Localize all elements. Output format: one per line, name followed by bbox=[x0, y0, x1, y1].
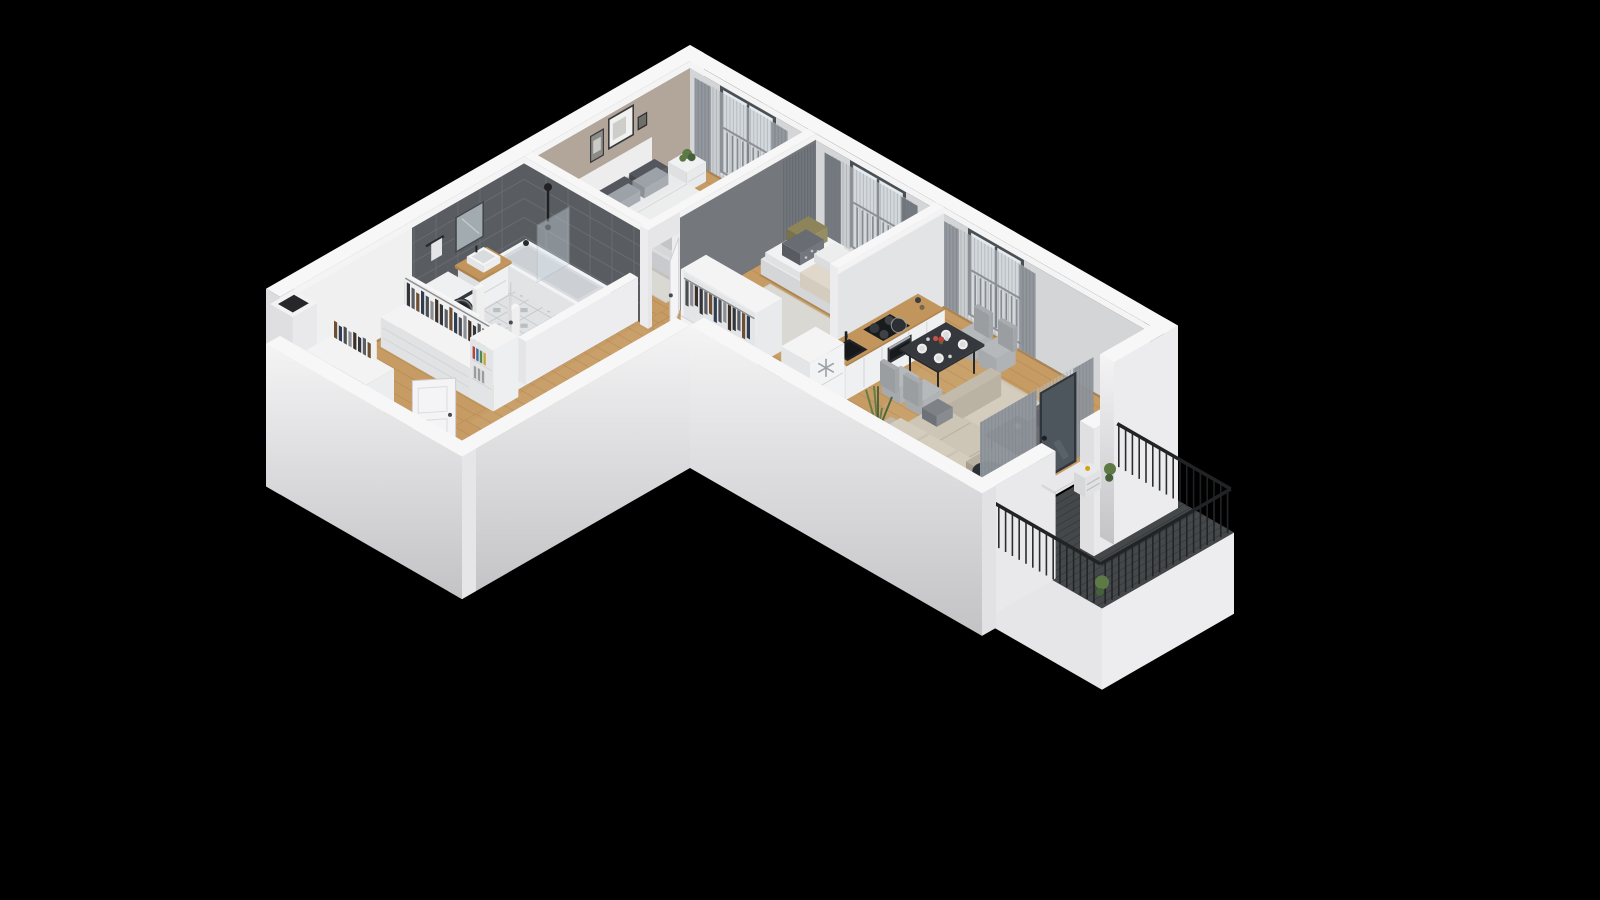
floor-plan-scene bbox=[0, 0, 1600, 900]
floor-plan-render bbox=[0, 0, 1600, 900]
